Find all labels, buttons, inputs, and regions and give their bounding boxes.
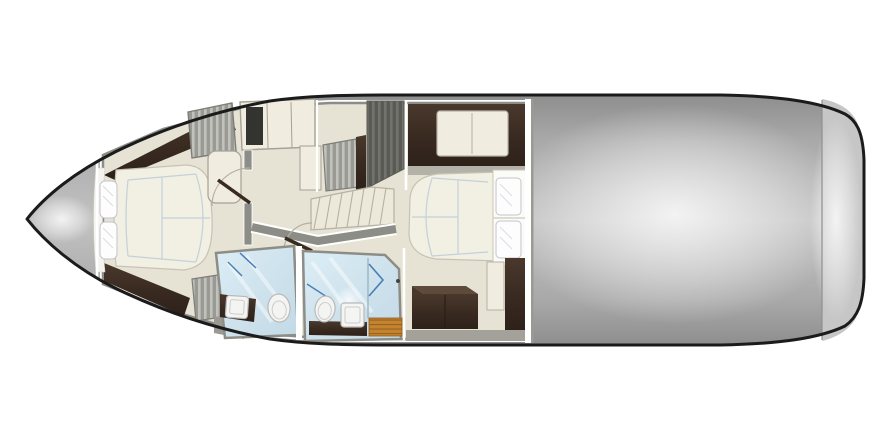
dresser bbox=[412, 286, 478, 329]
dark-cabinet-panel bbox=[246, 107, 263, 145]
shower-control bbox=[396, 279, 400, 283]
pillow bbox=[496, 221, 521, 258]
bow-deck-highlight bbox=[30, 195, 94, 243]
aft-deck-highlight bbox=[503, 104, 847, 324]
bottom-wall-band bbox=[406, 330, 527, 341]
pillow bbox=[100, 222, 117, 259]
settee bbox=[437, 111, 508, 156]
wood-cabinet-aft bbox=[505, 258, 526, 330]
teak-shower-grate bbox=[369, 318, 402, 336]
washbasin bbox=[225, 295, 248, 318]
stern-band-highlight bbox=[810, 117, 862, 321]
wall-segment bbox=[244, 150, 252, 170]
wood-wall-strip bbox=[356, 135, 366, 190]
mid-head bbox=[303, 251, 402, 341]
yacht-floor-plan bbox=[0, 0, 890, 446]
pillow bbox=[100, 181, 117, 218]
mid-berth-pillow-niche bbox=[493, 170, 526, 266]
wall-segment bbox=[244, 203, 252, 245]
cabinet-row bbox=[240, 99, 315, 150]
side-cabinet bbox=[487, 262, 504, 310]
floor-plan-canvas bbox=[0, 0, 890, 446]
forward-head-floor bbox=[216, 246, 298, 338]
washbasin bbox=[341, 303, 364, 327]
aft-bulkhead-wall bbox=[531, 99, 534, 343]
forward-head bbox=[216, 246, 298, 338]
hanging-locker-mid bbox=[323, 139, 359, 191]
pillow bbox=[496, 178, 521, 215]
aft-bulkhead-seam bbox=[525, 99, 532, 343]
hanging-locker-lower bbox=[192, 275, 222, 321]
mid-cabin bbox=[406, 104, 527, 341]
head-divider-seam bbox=[296, 246, 302, 340]
